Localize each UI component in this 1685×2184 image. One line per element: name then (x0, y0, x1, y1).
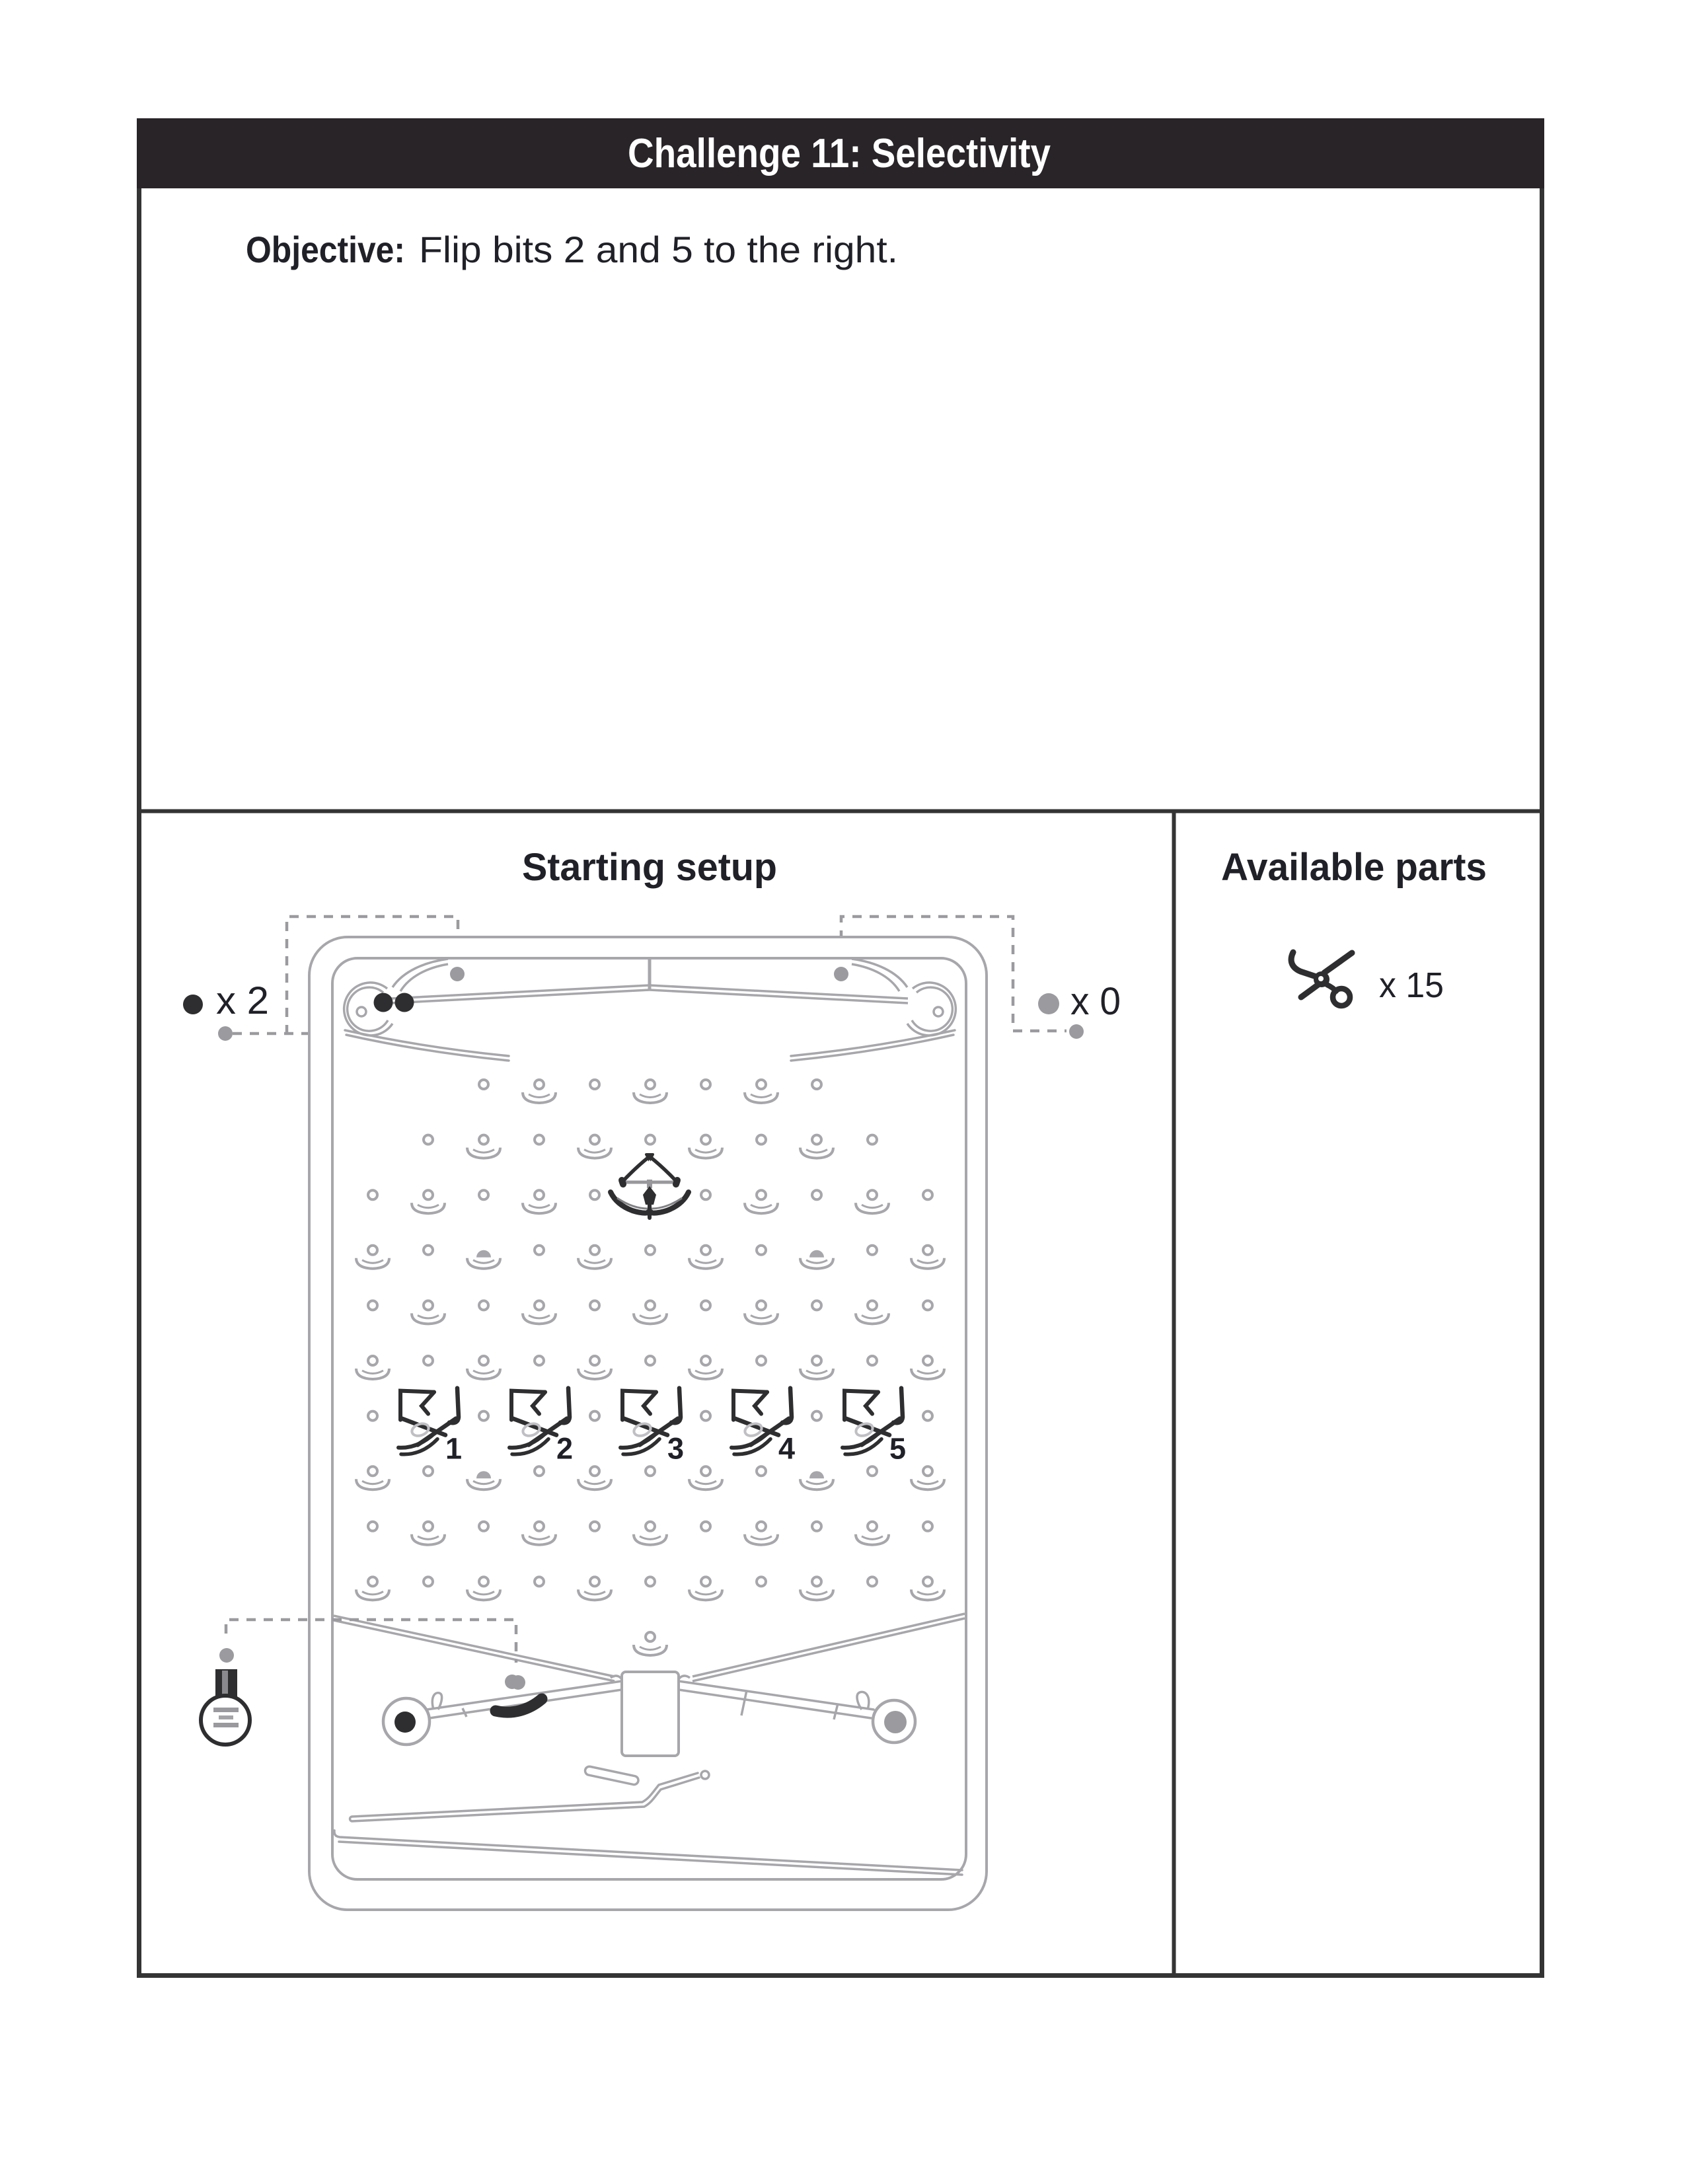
svg-text:4: 4 (778, 1432, 795, 1466)
svg-text:5: 5 (889, 1432, 906, 1466)
svg-text:x 15: x 15 (1379, 965, 1444, 1005)
svg-text:2: 2 (556, 1432, 573, 1466)
svg-text:1: 1 (445, 1432, 462, 1466)
svg-text:Starting setup: Starting setup (522, 846, 777, 889)
svg-text:3: 3 (667, 1432, 684, 1466)
svg-text:x 0: x 0 (1070, 980, 1121, 1023)
svg-text:Objective:Flip bits 2 and 5 to: Objective:Flip bits 2 and 5 to the right… (246, 229, 898, 270)
svg-text:x 2: x 2 (216, 979, 269, 1022)
svg-text:Available parts: Available parts (1221, 846, 1487, 889)
svg-text:Challenge 11: Selectivity: Challenge 11: Selectivity (628, 131, 1051, 176)
